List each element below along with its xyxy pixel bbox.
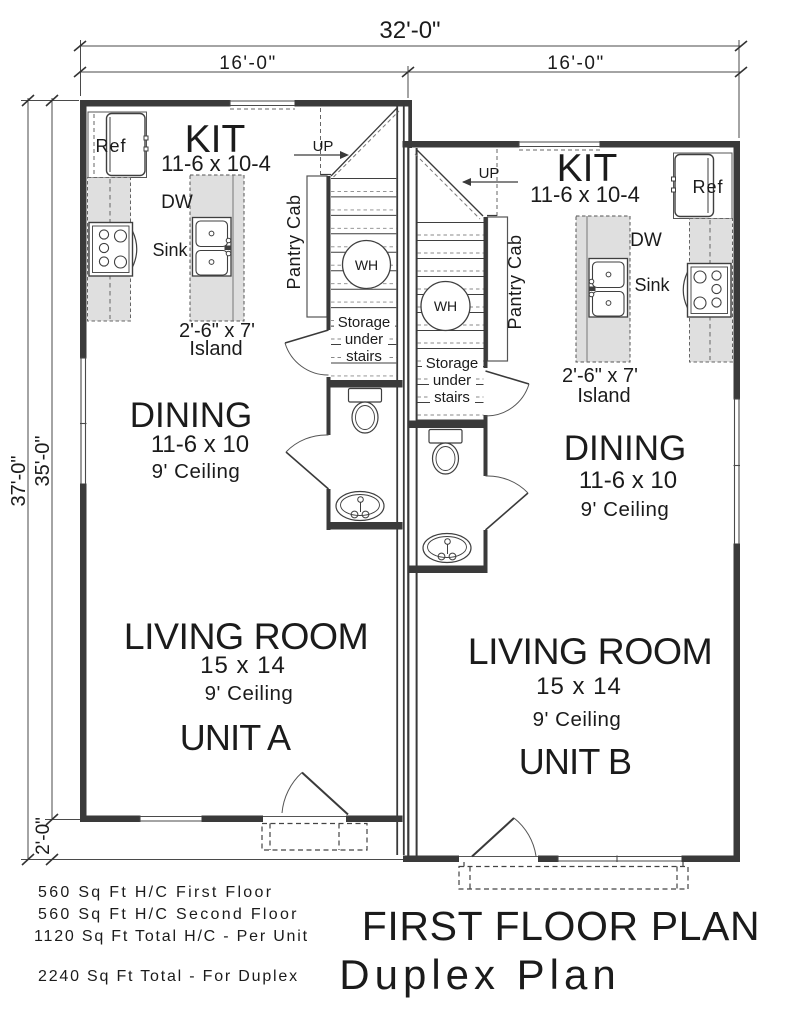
svg-text:WH: WH (355, 257, 378, 273)
svg-text:DINING: DINING (564, 429, 687, 468)
svg-text:15 x 14: 15 x 14 (536, 673, 622, 700)
svg-text:Ref: Ref (692, 177, 723, 197)
svg-text:9' Ceiling: 9' Ceiling (205, 682, 294, 705)
svg-text:DW: DW (630, 230, 662, 251)
svg-text:LIVING ROOM: LIVING ROOM (124, 615, 369, 657)
svg-text:Storage: Storage (426, 355, 479, 372)
svg-text:stairs: stairs (434, 389, 470, 406)
svg-text:11-6 x 10: 11-6 x 10 (579, 467, 677, 494)
svg-text:Sink: Sink (152, 240, 188, 260)
svg-text:11-6 x 10: 11-6 x 10 (151, 431, 249, 458)
svg-text:16'-0": 16'-0" (547, 53, 604, 74)
svg-text:1120 Sq Ft Total H/C - Per Uni: 1120 Sq Ft Total H/C - Per Unit (34, 928, 309, 945)
svg-text:Duplex Plan: Duplex Plan (339, 951, 620, 998)
svg-text:16'-0": 16'-0" (219, 53, 276, 74)
svg-text:9' Ceiling: 9' Ceiling (533, 708, 622, 731)
svg-text:Pantry Cab: Pantry Cab (505, 234, 525, 329)
svg-text:Ref: Ref (95, 136, 126, 156)
svg-text:DINING: DINING (130, 396, 253, 435)
svg-text:Storage: Storage (338, 314, 391, 331)
svg-text:UP: UP (479, 165, 500, 182)
svg-text:Island: Island (577, 385, 630, 407)
svg-text:LIVING ROOM: LIVING ROOM (468, 630, 713, 672)
svg-text:32'-0": 32'-0" (379, 17, 440, 44)
svg-text:9' Ceiling: 9' Ceiling (152, 460, 241, 483)
svg-text:DW: DW (161, 192, 193, 213)
svg-text:35'-0": 35'-0" (32, 436, 54, 487)
svg-text:stairs: stairs (346, 348, 382, 365)
svg-text:Sink: Sink (634, 275, 670, 295)
svg-text:560 Sq Ft H/C Second Floor: 560 Sq Ft H/C Second Floor (38, 906, 299, 923)
svg-text:2'-0": 2'-0" (33, 817, 54, 855)
svg-text:WH: WH (434, 298, 457, 314)
svg-text:Pantry Cab: Pantry Cab (284, 194, 304, 289)
svg-text:under: under (345, 331, 383, 348)
svg-text:UNIT B: UNIT B (519, 741, 632, 782)
svg-text:9' Ceiling: 9' Ceiling (581, 498, 670, 521)
svg-text:UNIT A: UNIT A (180, 717, 291, 758)
svg-text:UP: UP (313, 138, 334, 155)
svg-text:560 Sq Ft H/C First Floor: 560 Sq Ft H/C First Floor (38, 884, 273, 901)
svg-text:11-6 x 10-4: 11-6 x 10-4 (161, 151, 271, 176)
svg-text:under: under (433, 372, 471, 389)
svg-text:Island: Island (189, 338, 242, 360)
svg-text:11-6 x 10-4: 11-6 x 10-4 (530, 182, 640, 207)
svg-text:15 x 14: 15 x 14 (200, 652, 286, 679)
svg-text:2'-6" x 7': 2'-6" x 7' (562, 365, 638, 387)
svg-text:37'-0": 37'-0" (8, 456, 30, 507)
svg-text:FIRST FLOOR PLAN: FIRST FLOOR PLAN (362, 903, 760, 949)
svg-text:2240 Sq Ft Total - For Duplex: 2240 Sq Ft Total - For Duplex (38, 968, 299, 985)
